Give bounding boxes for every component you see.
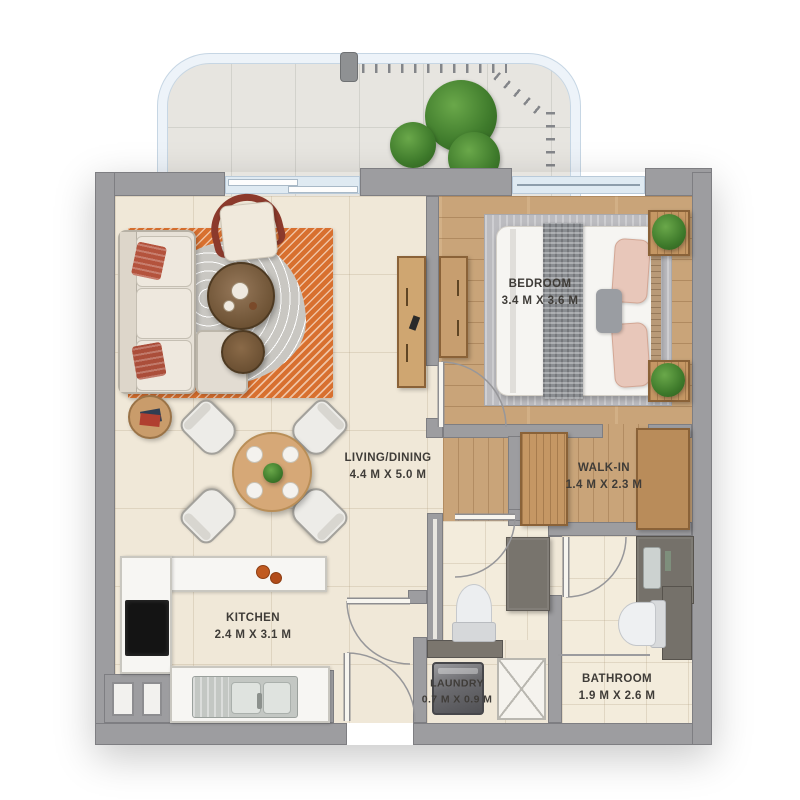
wardrobe — [520, 432, 568, 526]
table-plant — [263, 463, 283, 483]
balcony-sliding-door — [225, 176, 360, 194]
sofa-cushion — [136, 288, 192, 339]
toilet-tank — [452, 622, 496, 642]
walk-in-label: WALK-IN 1.4 M X 2.3 M — [566, 460, 643, 495]
railing-balusters — [362, 64, 507, 73]
coffee-table-small — [221, 330, 265, 374]
wall — [426, 196, 439, 366]
bed-throw — [543, 223, 583, 399]
wall — [548, 595, 562, 723]
bed — [496, 226, 660, 396]
fruit — [256, 565, 270, 579]
washer-panel — [438, 668, 478, 674]
console-handle — [406, 288, 408, 306]
sink-basin — [263, 682, 291, 714]
wall — [360, 168, 512, 196]
room-dimensions: 1.9 M X 2.6 M — [579, 688, 656, 705]
tv-console — [397, 256, 426, 388]
bedroom-label: BEDROOM 3.4 M X 3.6 M — [502, 276, 579, 311]
slider-panel — [228, 179, 298, 186]
duvet-fold — [510, 229, 516, 393]
coffee-table — [207, 262, 275, 330]
wall — [408, 590, 427, 604]
room-name: BEDROOM — [502, 276, 579, 293]
vanity-sink — [643, 547, 661, 589]
side-table — [128, 395, 172, 439]
remote — [409, 315, 420, 331]
railing-post — [340, 52, 358, 82]
coffee-cup — [231, 282, 249, 300]
bedroom-window — [512, 176, 645, 194]
plant-foliage — [390, 122, 436, 168]
laundry-label: LAUNDRY 0.7 M X 0.9 M — [422, 676, 493, 708]
coffee-cup — [223, 300, 235, 312]
room-name: LAUNDRY — [422, 676, 493, 692]
plate — [282, 446, 299, 463]
armchair-cushion — [219, 201, 279, 262]
kitchen-label: KITCHEN 2.4 M X 3.1 M — [215, 610, 292, 645]
room-dimensions: 2.4 M X 3.1 M — [215, 627, 292, 644]
room-dimensions: 0.7 M X 0.9 M — [422, 692, 493, 708]
kitchen-sink — [192, 676, 298, 718]
room-dimensions: 4.4 M X 5.0 M — [345, 467, 432, 484]
slider-panel — [288, 186, 358, 193]
nightstand-plant — [652, 214, 686, 250]
wall-plumbing — [427, 640, 503, 658]
shower — [497, 658, 546, 720]
room-dimensions: 3.4 M X 3.6 M — [502, 293, 579, 310]
sink-faucet — [257, 693, 262, 709]
kitchen-counter-sink — [170, 666, 330, 723]
wall — [692, 172, 712, 745]
bed-pillow-gray — [596, 289, 622, 333]
wall — [426, 418, 443, 438]
room-name: KITCHEN — [215, 610, 292, 627]
floor-plan: LIVING/DINING 4.4 M X 5.0 M BEDROOM 3.4 … — [0, 0, 800, 800]
sofa-pillow-red — [131, 342, 166, 381]
window-pane-line — [517, 184, 640, 186]
console-handle — [406, 344, 408, 362]
riser-shaft — [112, 682, 134, 716]
dresser-handle — [457, 320, 459, 336]
vanity-soap — [665, 551, 671, 571]
plate — [282, 482, 299, 499]
wall — [95, 172, 115, 745]
balcony-plant — [390, 80, 505, 175]
dresser-handle — [457, 280, 459, 296]
wc-toilet — [452, 584, 494, 642]
book — [139, 413, 160, 427]
cooktop — [125, 600, 169, 656]
room-name: BATHROOM — [579, 671, 656, 688]
wall — [95, 723, 347, 745]
pocket-door-slot — [433, 519, 437, 639]
bathroom-label: BATHROOM 1.9 M X 2.6 M — [579, 671, 656, 706]
bedroom-dresser — [439, 256, 468, 358]
sofa — [118, 230, 196, 394]
wall-pocket-door — [427, 513, 443, 646]
dining-table — [232, 432, 312, 512]
bathroom-toilet — [618, 598, 668, 648]
table-decor — [249, 302, 257, 310]
wall — [413, 723, 712, 745]
plate — [246, 446, 263, 463]
wc-basin-cabinet — [506, 537, 550, 611]
living-dining-label: LIVING/DINING 4.4 M X 5.0 M — [345, 450, 432, 485]
toilet-bowl — [618, 602, 656, 646]
room-dimensions: 1.4 M X 2.3 M — [566, 477, 643, 494]
fruit — [270, 572, 282, 584]
wardrobe — [636, 428, 690, 530]
plate — [246, 482, 263, 499]
nightstand-plant — [651, 363, 685, 397]
riser-shaft — [142, 682, 162, 716]
room-name: WALK-IN — [566, 460, 643, 477]
room-name: LIVING/DINING — [345, 450, 432, 467]
